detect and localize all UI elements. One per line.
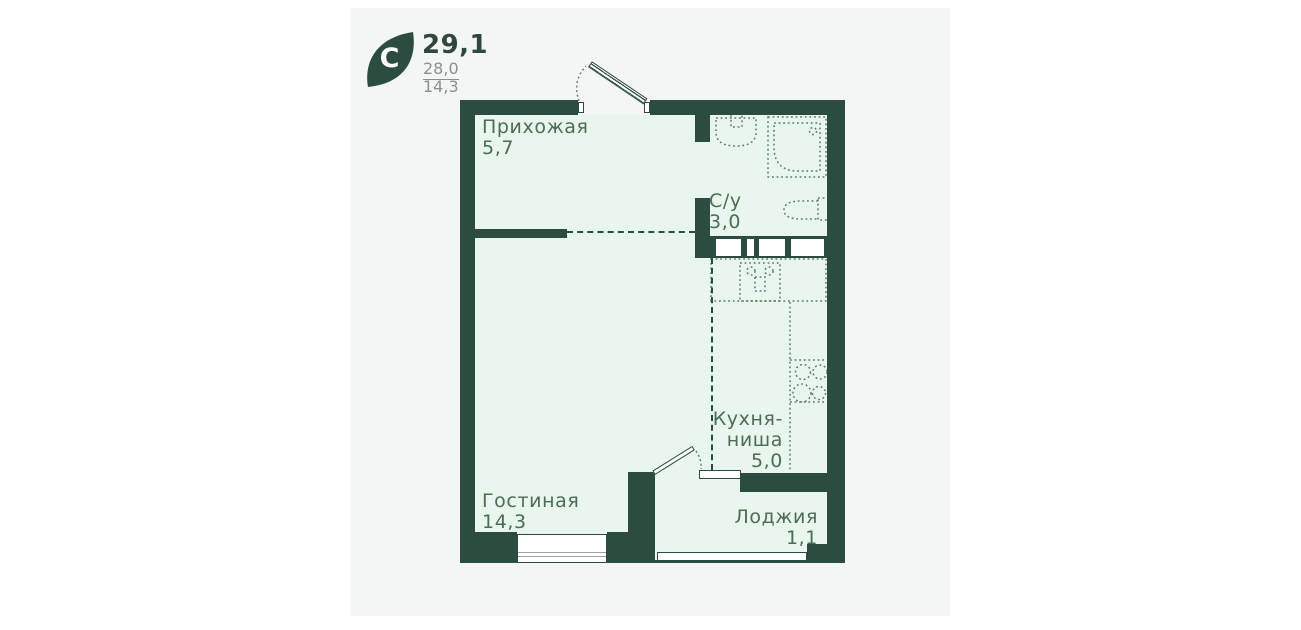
wall-bathroom-lower (695, 198, 710, 236)
room-name: Лоджия (600, 507, 818, 528)
room-area: 3,0 (709, 212, 742, 233)
logo-letter: С (366, 43, 413, 74)
room-label-bathroom: С/у 3,0 (709, 191, 742, 233)
vent-shaft (747, 239, 754, 256)
wall-right (827, 100, 845, 563)
room-area: 14,3 (482, 512, 579, 533)
window-living-room (517, 534, 607, 563)
area-tertiary: 14,3 (423, 77, 459, 96)
room-name: Кухня- (640, 409, 783, 430)
room-label-living: Гостиная 14,3 (482, 491, 579, 533)
room-name: С/у (709, 191, 742, 212)
room-label-hallway: Прихожая 5,7 (482, 117, 589, 159)
wall-top-left (460, 100, 578, 115)
room-area: 5,0 (640, 451, 783, 472)
page: С 29,1 28,0 14,3 (0, 0, 1301, 630)
window-frame-line (518, 556, 606, 557)
wall-hallway-divider (475, 229, 567, 238)
dashed-line-hallway (567, 231, 695, 233)
door-jamb (578, 102, 584, 113)
door-jamb (644, 102, 650, 113)
room-name: Прихожая (482, 117, 589, 138)
wall-bottom-left (460, 532, 517, 563)
developer-logo: С (366, 30, 416, 90)
window-loggia-glazing (657, 552, 807, 561)
window-frame-line (518, 552, 606, 553)
area-total: 29,1 (422, 30, 488, 60)
floor-plan: Прихожая 5,7 С/у 3,0 Кухня- ниша 5,0 Гос… (460, 100, 845, 563)
room-area: 5,7 (482, 138, 589, 159)
vent-shaft (759, 239, 785, 256)
wall-top-right (650, 100, 845, 115)
room-area: 1,1 (600, 528, 818, 549)
wall-loggia-top (740, 473, 827, 492)
wall-left (460, 100, 475, 563)
room-label-kitchen: Кухня- ниша 5,0 (640, 409, 783, 472)
room-name: ниша (640, 430, 783, 451)
wall-bathroom-upper (695, 115, 710, 142)
room-label-loggia: Лоджия 1,1 (600, 507, 818, 549)
vent-shaft (791, 239, 824, 256)
room-name: Гостиная (482, 491, 579, 512)
vent-shaft (716, 239, 741, 256)
